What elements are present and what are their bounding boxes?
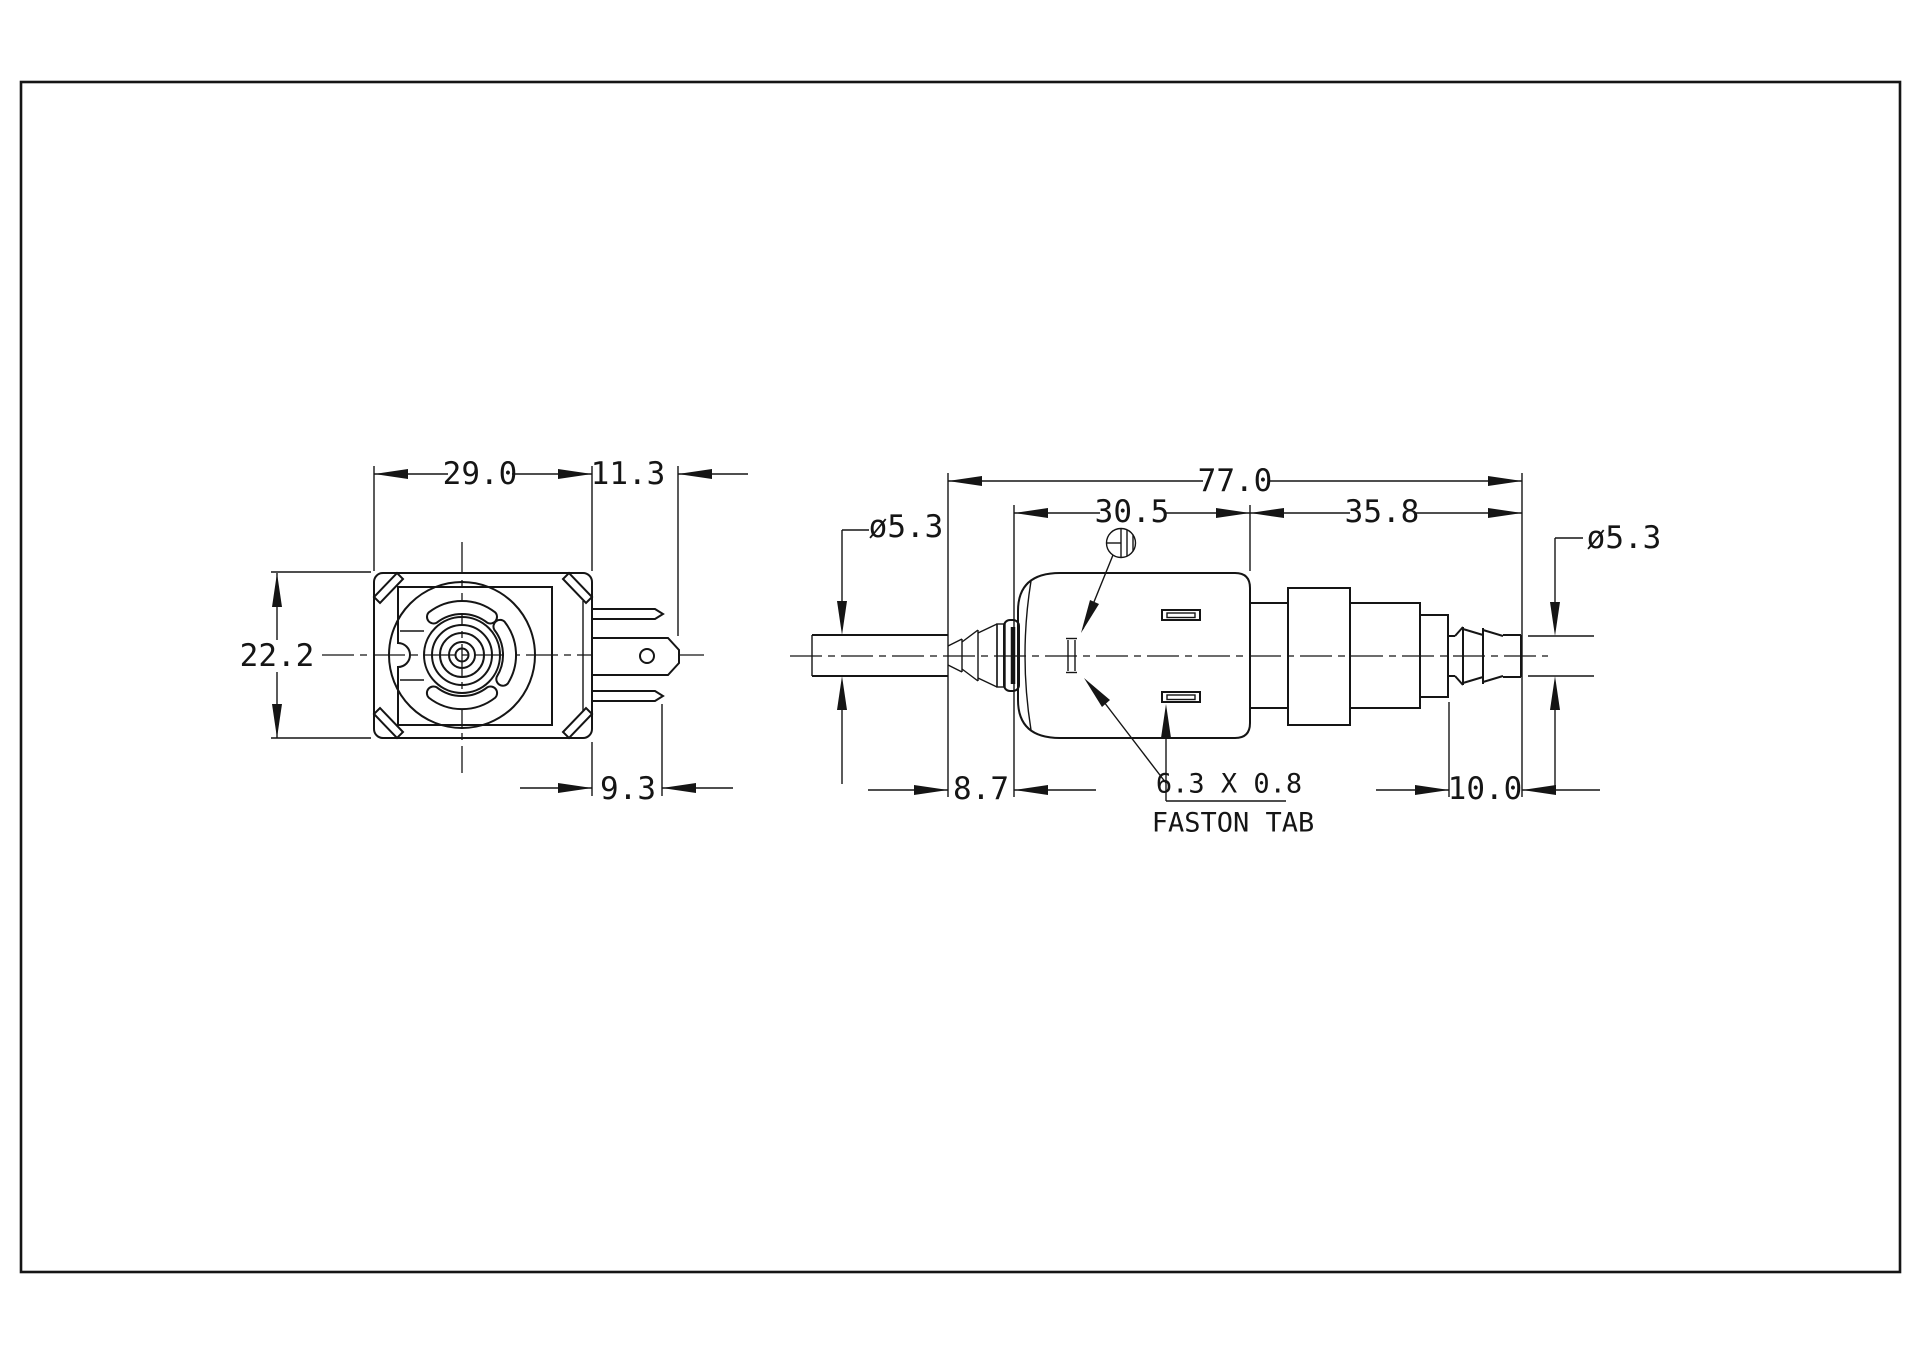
terminal-slot-upper (1162, 610, 1200, 620)
dim-label-9-3: 9.3 (600, 771, 656, 807)
dim-label-30-5: 30.5 (1095, 494, 1170, 530)
dim-outlet-diameter: ø5.3 (1528, 520, 1661, 788)
callout-tab-size: 6.3 X 0.8 (1156, 769, 1302, 800)
dim-label-22-2: 22.2 (240, 638, 315, 674)
dim-inlet-diameter: ø5.3 (837, 509, 943, 784)
vent-arc-right (493, 620, 516, 686)
dim-label-29: 29.0 (443, 456, 518, 492)
chamfer-top-right (563, 573, 592, 603)
dim-label-inlet-dia: ø5.3 (869, 509, 944, 545)
chamfer-bottom-right (563, 708, 592, 738)
engineering-drawing: 29.0 11.3 22.2 9.3 (0, 0, 1920, 1356)
dim-barb-length: 10.0 (1376, 702, 1600, 807)
vent-arc-bottom (427, 686, 497, 709)
callout-tab-note: FASTON TAB (1152, 808, 1315, 839)
marking-symbol (1081, 529, 1136, 634)
front-view: 29.0 11.3 22.2 9.3 (240, 456, 748, 807)
dim-label-8-7: 8.7 (953, 771, 1009, 807)
dim-front-width: 29.0 11.3 (374, 456, 748, 636)
dim-label-10: 10.0 (1448, 771, 1523, 807)
terminal-pin-top (592, 609, 663, 619)
connector-center-block (592, 638, 679, 675)
side-view: 77.0 30.5 35.8 ø5.3 (790, 463, 1661, 839)
terminal-pin-bottom (592, 691, 663, 701)
dim-body-and-head: 30.5 35.8 (1014, 494, 1522, 797)
dim-label-outlet-dia: ø5.3 (1587, 520, 1662, 556)
dim-inlet-stickout: 8.7 (868, 771, 1096, 807)
drawing-sheet: 29.0 11.3 22.2 9.3 (0, 0, 1920, 1356)
dim-label-35-8: 35.8 (1345, 494, 1420, 530)
dim-label-77: 77.0 (1198, 463, 1273, 499)
dim-label-11-3: 11.3 (591, 456, 666, 492)
sheet-border (21, 82, 1900, 1272)
terminal-slot-lower (1162, 692, 1200, 702)
